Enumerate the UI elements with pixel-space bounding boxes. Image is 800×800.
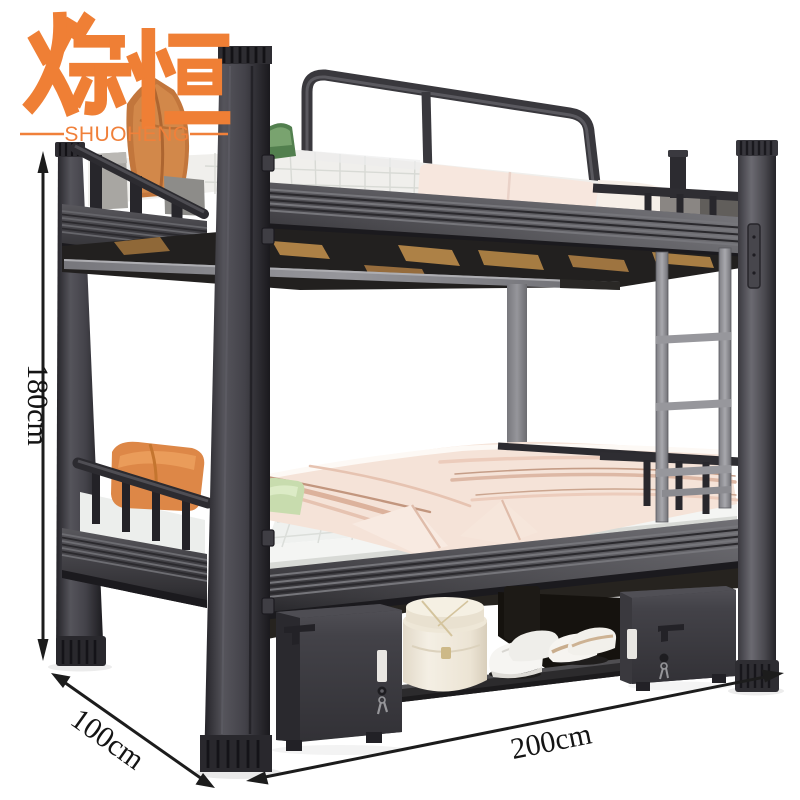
svg-text:SHUOHENG: SHUOHENG bbox=[64, 123, 189, 146]
svg-text:180cm: 180cm bbox=[21, 364, 54, 446]
